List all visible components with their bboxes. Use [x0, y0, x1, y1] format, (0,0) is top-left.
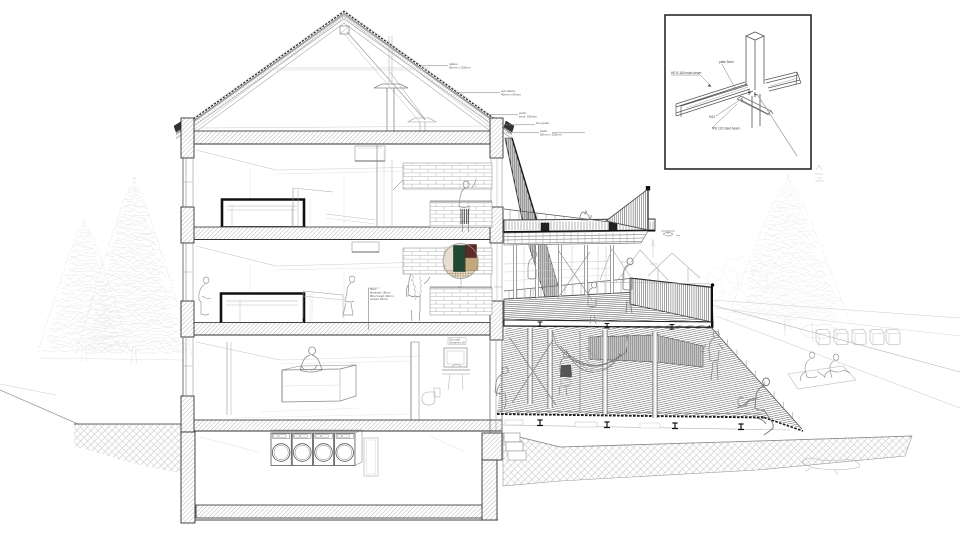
svg-text:IPE 120 steel beam: IPE 120 steel beam [712, 127, 740, 131]
svg-text:chicanery 18: chicanery 18 [449, 341, 465, 345]
svg-text:M12: M12 [709, 115, 715, 119]
svg-text:50mm x 150mm: 50mm x 150mm [449, 65, 471, 69]
svg-text:screed 40mm: screed 40mm [370, 297, 389, 301]
svg-text:40mm x 60mm: 40mm x 60mm [501, 92, 521, 96]
svg-text:box gutter: box gutter [536, 121, 549, 125]
svg-text:HE B 160 main beam: HE B 160 main beam [671, 71, 702, 75]
svg-text:1:5: 1:5 [458, 285, 462, 289]
svg-text:insul. 160mm: insul. 160mm [519, 114, 537, 118]
svg-text:plate 5mm: plate 5mm [719, 60, 734, 64]
